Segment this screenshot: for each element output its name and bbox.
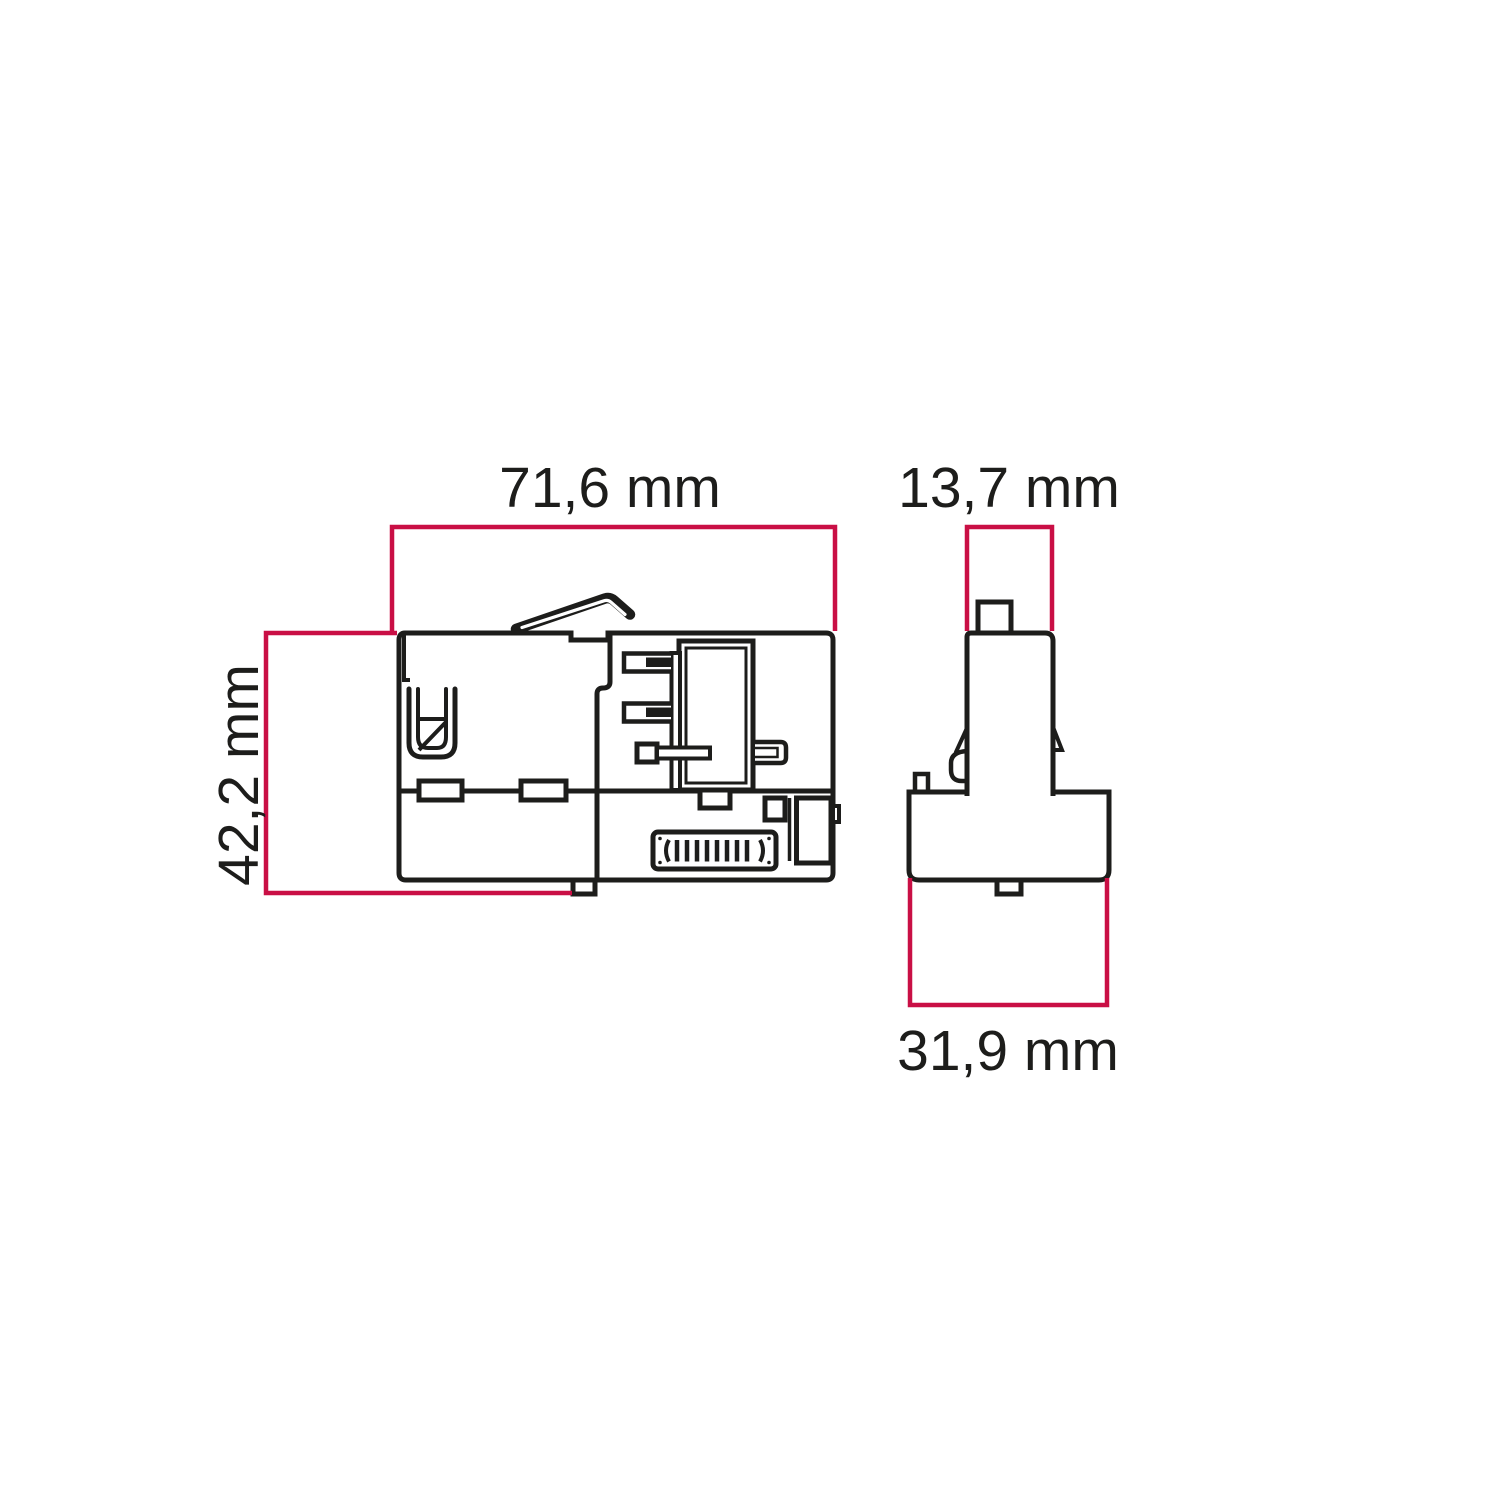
grill-rivet-tr bbox=[767, 837, 771, 841]
dimension-label-front-width: 13,7 mm bbox=[898, 456, 1120, 520]
actuator-pad bbox=[637, 744, 657, 762]
front-bottom-notch bbox=[997, 881, 1021, 894]
contact-prong-1-tip bbox=[646, 658, 671, 668]
dimension-drawing-svg: 71,6 mm 13,7 mm 42,2 mm 31,9 mm bbox=[0, 0, 1500, 1500]
dimension-label-front-base-width: 31,9 mm bbox=[897, 1019, 1119, 1083]
dimension-bracket-side-width bbox=[392, 527, 835, 631]
actuator-bar bbox=[657, 748, 710, 759]
front-base-outline bbox=[909, 792, 1109, 880]
front-view-drawing bbox=[909, 602, 1109, 894]
side-view-drawing bbox=[399, 598, 839, 894]
technical-drawing-canvas: 71,6 mm 13,7 mm 42,2 mm 31,9 mm bbox=[0, 0, 1500, 1500]
dimension-bracket-front-base-width bbox=[910, 878, 1107, 1005]
grill-rivet-bl bbox=[658, 861, 662, 865]
right-edge-tab bbox=[833, 806, 839, 822]
contact-prong-2-tip bbox=[646, 708, 671, 718]
housing-right-hook bbox=[755, 742, 786, 763]
dimension-label-side-width: 71,6 mm bbox=[499, 456, 721, 520]
bottom-right-big-box bbox=[797, 798, 832, 863]
front-neck-outline bbox=[967, 633, 1053, 796]
grill-frame bbox=[653, 832, 776, 869]
terminal-block-2 bbox=[521, 781, 566, 800]
grill-rivet-br bbox=[767, 861, 771, 865]
terminal-block-1 bbox=[419, 781, 462, 800]
contact-housing-outer bbox=[679, 641, 753, 790]
contact-bar bbox=[672, 653, 681, 790]
dimension-label-side-height: 42,2 mm bbox=[207, 664, 271, 886]
top-pin bbox=[978, 602, 1011, 634]
bottom-right-small-box bbox=[765, 798, 785, 820]
grill-rivet-tl bbox=[658, 837, 662, 841]
